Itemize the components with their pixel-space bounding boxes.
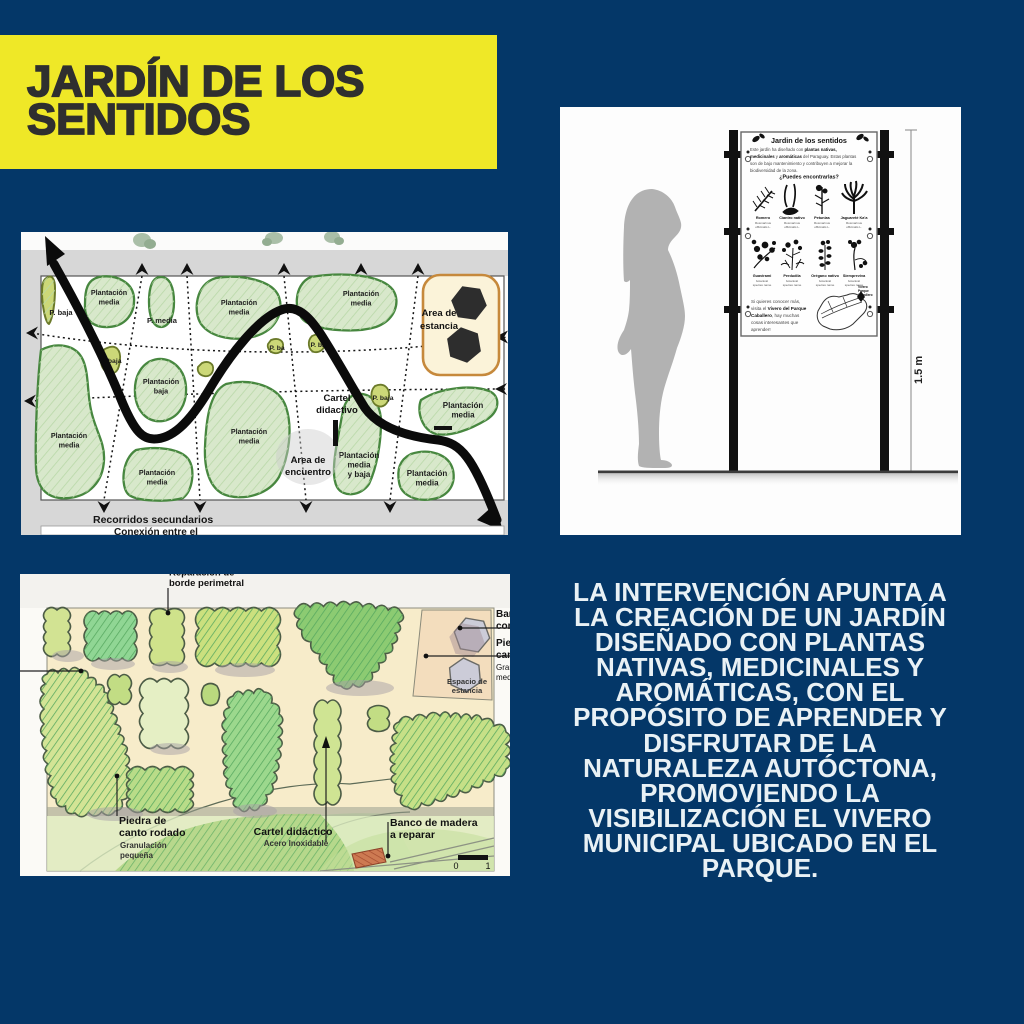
- svg-text:Area de: Area de: [422, 308, 457, 319]
- svg-text:Banco de madera: Banco de madera: [390, 817, 478, 829]
- svg-text:¿Puedes encontrarlas?: ¿Puedes encontrarlas?: [779, 175, 839, 181]
- svg-text:media: media: [451, 411, 475, 420]
- svg-text:son de bajo mantenimiento y co: son de bajo mantenimiento y contribuyen …: [750, 161, 853, 166]
- svg-text:media: media: [59, 441, 81, 450]
- svg-text:y baja: y baja: [348, 470, 371, 479]
- svg-text:media: media: [351, 299, 373, 308]
- svg-text:Gran: Gran: [496, 663, 510, 672]
- svg-text:estancia: estancia: [452, 686, 483, 695]
- svg-text:encuentro: encuentro: [285, 467, 331, 478]
- svg-text:Plantación: Plantación: [343, 289, 379, 298]
- svg-text:Granulación: Granulación: [120, 841, 167, 850]
- svg-text:Guavirami: Guavirami: [753, 274, 772, 278]
- svg-text:Siempreviva: Siempreviva: [843, 274, 866, 278]
- svg-text:Romero: Romero: [756, 216, 771, 220]
- svg-text:Ban: Ban: [496, 609, 510, 620]
- svg-text:Cartel: Cartel: [324, 393, 351, 404]
- svg-text:P. baja: P. baja: [49, 308, 73, 317]
- svg-text:Plantación: Plantación: [407, 469, 448, 478]
- svg-text:Area de: Area de: [291, 455, 326, 466]
- svg-text:1.5 m: 1.5 m: [913, 356, 925, 384]
- svg-text:visita el Vivero del Parque: visita el Vivero del Parque: [751, 306, 807, 311]
- svg-text:med: med: [496, 673, 510, 682]
- svg-text:Petunias: Petunias: [814, 216, 830, 220]
- svg-text:Plantación: Plantación: [91, 288, 127, 297]
- svg-text:media: media: [229, 308, 251, 317]
- svg-text:Plantación: Plantación: [231, 427, 267, 436]
- svg-text:Cartel didáctico: Cartel didáctico: [254, 826, 333, 838]
- svg-text:Plantación: Plantación: [221, 298, 257, 307]
- svg-text:species name: species name: [753, 283, 772, 287]
- svg-text:Cíantro nativo: Cíantro nativo: [779, 216, 805, 220]
- svg-text:media: media: [239, 437, 261, 446]
- svg-text:1: 1: [485, 861, 490, 871]
- svg-text:cosas interesantes que: cosas interesantes que: [751, 320, 799, 325]
- svg-text:Piedra de: Piedra de: [119, 815, 166, 827]
- svg-text:Si quieres conocer más,: Si quieres conocer más,: [751, 299, 800, 304]
- svg-text:Acero Inoxidable: Acero Inoxidable: [264, 839, 329, 848]
- svg-text:species name: species name: [816, 283, 835, 287]
- svg-text:pequeña: pequeña: [120, 851, 153, 860]
- svg-text:Plantación: Plantación: [339, 451, 380, 460]
- svg-text:Caballero: Caballero: [858, 293, 873, 297]
- svg-text:didactivo: didactivo: [316, 405, 358, 416]
- svg-text:Recorridos secundarios: Recorridos secundarios: [93, 514, 213, 526]
- svg-text:con: con: [496, 621, 510, 632]
- svg-text:borde perimetral: borde perimetral: [169, 578, 244, 589]
- svg-text:estancia: estancia: [420, 321, 459, 332]
- svg-text:media: media: [147, 478, 169, 487]
- svg-text:Perdudila: Perdudila: [783, 274, 801, 278]
- svg-text:officinalis L.: officinalis L.: [784, 225, 800, 229]
- svg-text:Este jardín ha diseñado co: Este jardín ha diseñado con plantas nati…: [750, 147, 837, 152]
- svg-text:Reparación de: Reparación de: [169, 574, 234, 579]
- svg-text:officinalis L.: officinalis L.: [846, 225, 862, 229]
- svg-text:baja: baja: [154, 387, 169, 396]
- svg-text:Pied: Pied: [496, 638, 510, 649]
- svg-text:Plantación: Plantación: [143, 377, 179, 386]
- svg-text:Plantación: Plantación: [443, 401, 484, 410]
- svg-text:Conexión entre el: Conexión entre el: [114, 527, 198, 535]
- svg-text:media: media: [415, 479, 439, 488]
- svg-text:officinalis L.: officinalis L.: [755, 225, 771, 229]
- svg-text:officinalis L.: officinalis L.: [814, 225, 830, 229]
- svg-text:Plantación: Plantación: [139, 468, 175, 477]
- svg-text:Orégano nativo: Orégano nativo: [811, 274, 840, 278]
- svg-text:P. baja: P. baja: [372, 395, 393, 402]
- svg-text:species name: species name: [783, 283, 802, 287]
- svg-text:Espacio de: Espacio de: [447, 677, 487, 686]
- svg-text:Jardin de los sentidos: Jardin de los sentidos: [771, 136, 847, 145]
- svg-text:biodiversidad de la zona.: biodiversidad de la zona.: [750, 168, 798, 173]
- svg-text:canto rodado: canto rodado: [119, 827, 186, 839]
- svg-text:Plantación: Plantación: [51, 431, 87, 440]
- svg-text:a reparar: a reparar: [390, 829, 435, 841]
- svg-text:media: media: [99, 298, 121, 307]
- svg-text:aprender!: aprender!: [751, 327, 771, 332]
- svg-text:P. media: P. media: [147, 316, 178, 325]
- svg-text:Jaguareté Ka'a: Jaguareté Ka'a: [841, 216, 869, 220]
- svg-text:media: media: [347, 461, 371, 470]
- svg-text:0: 0: [453, 861, 458, 871]
- svg-text:medicinales y aromáticas del P: medicinales y aromáticas del Paraguay. E…: [750, 154, 856, 159]
- svg-text:Caballero, hay muchas: Caballero, hay muchas: [751, 313, 800, 318]
- svg-text:P. ba: P. ba: [269, 345, 285, 352]
